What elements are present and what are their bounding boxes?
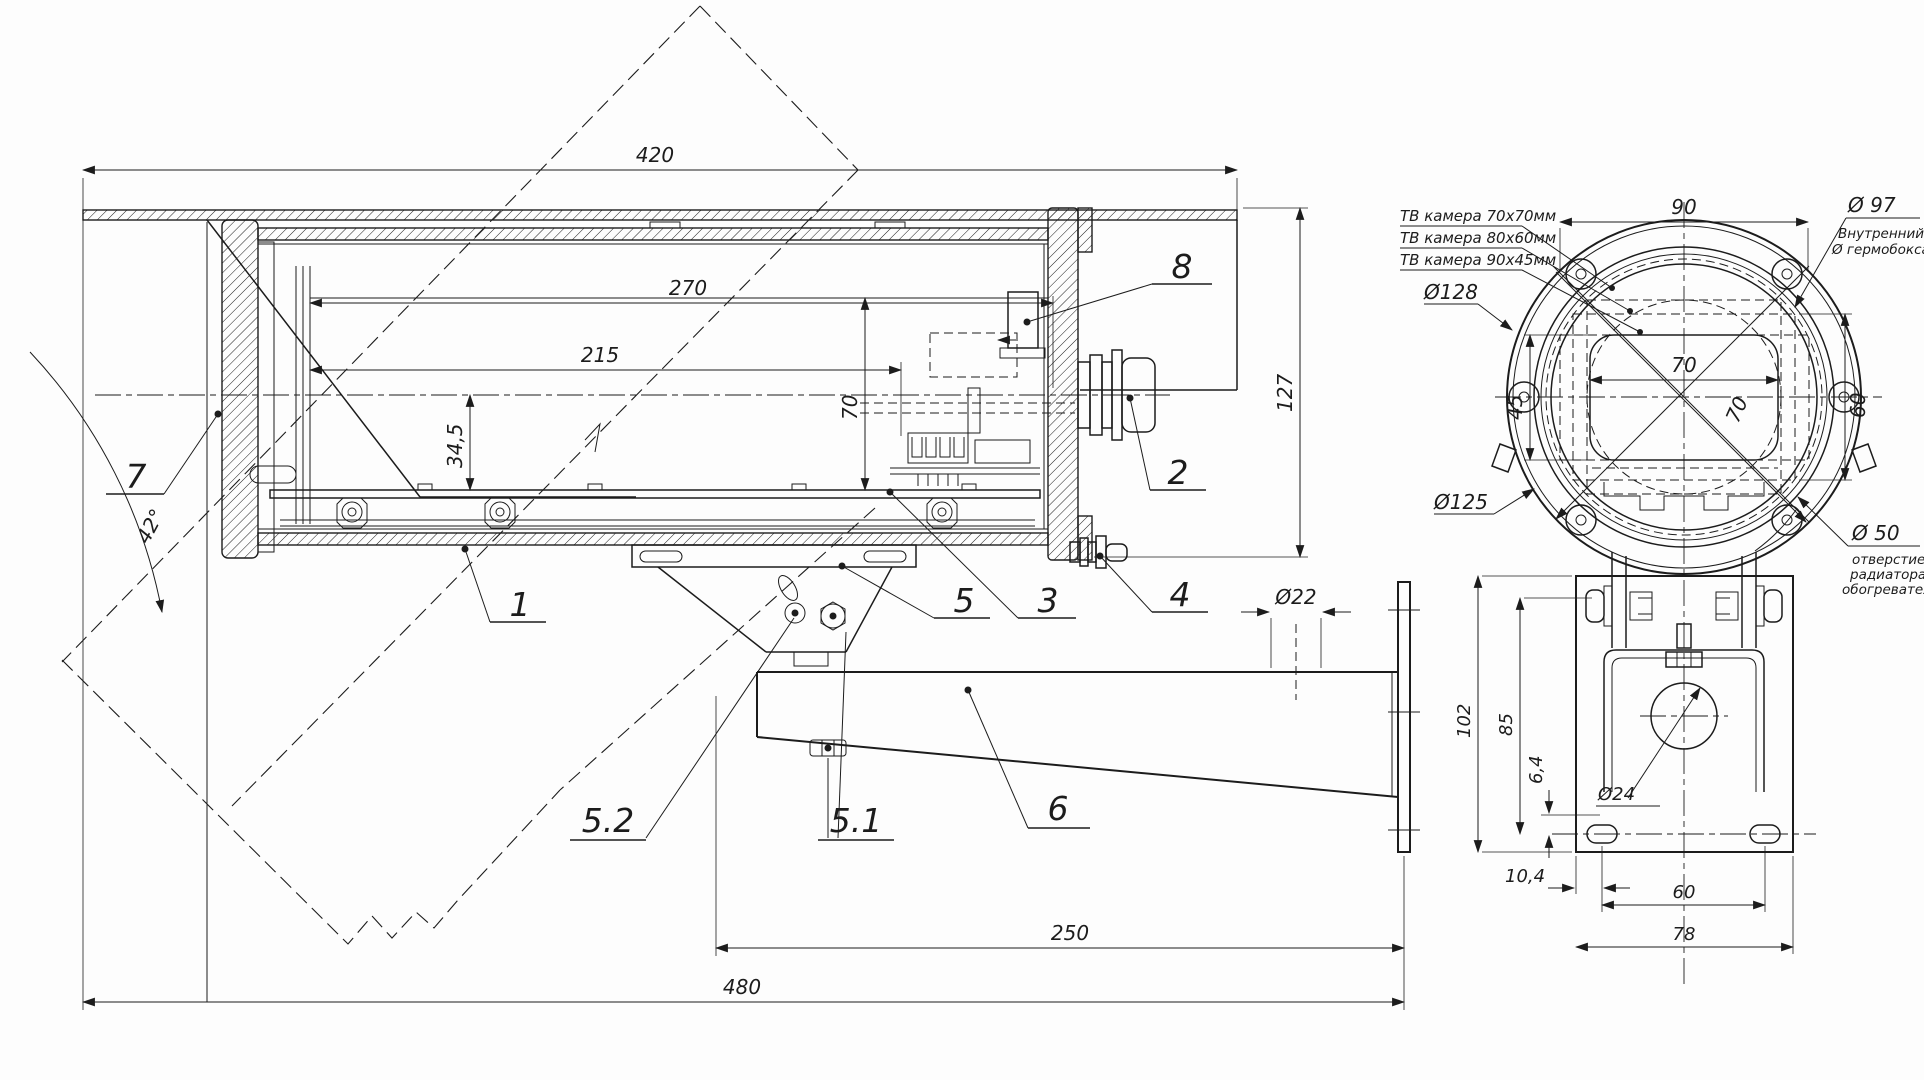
dim-70-side: 70 bbox=[838, 395, 862, 420]
drawing-page: 42° bbox=[0, 0, 1924, 1080]
front-view: 90 45 60 70 70 ТВ камера 70х70мм ТВ каме… bbox=[1400, 193, 1924, 985]
dim-6-4: 6,4 bbox=[1526, 755, 1547, 784]
callout-7: 7 bbox=[126, 457, 147, 496]
note-d97-2: Ø гермобокса bbox=[1831, 242, 1924, 258]
swing-angle: 42° bbox=[30, 222, 207, 1002]
note-d50-3: обогревателя bbox=[1842, 582, 1924, 598]
dim-420: 420 bbox=[636, 143, 674, 167]
dim-10-4: 10,4 bbox=[1505, 866, 1545, 887]
dim-480: 480 bbox=[723, 975, 761, 999]
callout-4: 4 bbox=[1170, 575, 1191, 614]
dim-270: 270 bbox=[669, 276, 707, 300]
rim-tab-right bbox=[1852, 444, 1876, 472]
dim-85: 85 bbox=[1496, 713, 1517, 736]
label-d50: Ø 50 bbox=[1851, 521, 1900, 545]
dim-127: 127 bbox=[1273, 374, 1297, 412]
note-d97-1: Внутренний bbox=[1838, 226, 1924, 242]
camera-sled bbox=[270, 484, 1040, 528]
callout-3: 3 bbox=[1038, 581, 1059, 620]
callout-2: 2 bbox=[1168, 453, 1189, 492]
label-cam-90x45: ТВ камера 90х45мм bbox=[1400, 251, 1556, 269]
dim-90: 90 bbox=[1671, 195, 1696, 219]
mount-bracket bbox=[632, 545, 916, 756]
dim-45: 45 bbox=[1503, 395, 1527, 420]
roller bbox=[337, 498, 367, 528]
dim-250: 250 bbox=[1051, 921, 1089, 945]
housing-body bbox=[258, 222, 1048, 545]
dim-60-front: 60 bbox=[1846, 393, 1870, 418]
callout-5-2: 5.2 bbox=[582, 801, 634, 840]
arm-flange bbox=[1398, 582, 1410, 852]
front-dimensions: 90 45 60 70 70 bbox=[1503, 195, 1870, 480]
label-cam-80x60: ТВ камера 80х60мм bbox=[1400, 229, 1556, 247]
hinge-bolt-left bbox=[1586, 586, 1652, 626]
roller bbox=[927, 498, 957, 528]
label-d125: Ø125 bbox=[1433, 490, 1488, 514]
technical-drawing: 42° bbox=[0, 0, 1924, 1080]
dim-70-horizontal: 70 bbox=[1671, 353, 1696, 377]
heater-aperture bbox=[1592, 468, 1778, 510]
label-d128: Ø128 bbox=[1423, 280, 1478, 304]
note-d50-1: отверстие bbox=[1852, 552, 1924, 568]
dim-78: 78 bbox=[1673, 924, 1696, 945]
hinge-bolt-right bbox=[1716, 586, 1782, 626]
dim-60-bracket: 60 bbox=[1673, 882, 1696, 903]
dim-215: 215 bbox=[581, 343, 619, 367]
terminal-block bbox=[860, 333, 1075, 486]
callout-1: 1 bbox=[510, 585, 531, 624]
side-dimensions: 420 270 215 34,5 70 127 Ø22 250 480 bbox=[83, 143, 1404, 1010]
callout-6: 6 bbox=[1048, 789, 1069, 828]
callout-8: 8 bbox=[1172, 247, 1193, 286]
internal-bracket bbox=[998, 292, 1045, 358]
callout-5: 5 bbox=[954, 581, 975, 620]
callout-5-1: 5.1 bbox=[830, 801, 882, 840]
label-d24: Ø24 bbox=[1597, 784, 1635, 805]
label-d97: Ø 97 bbox=[1847, 193, 1896, 217]
label-cam-70x70: ТВ камера 70х70мм bbox=[1400, 207, 1556, 225]
dim-102: 102 bbox=[1454, 704, 1475, 738]
front-bezel bbox=[222, 220, 310, 558]
rear-cover bbox=[1044, 208, 1092, 560]
dim-42deg: 42° bbox=[131, 505, 169, 548]
note-d50-2: радиатора bbox=[1849, 567, 1924, 583]
dim-34-5: 34,5 bbox=[443, 423, 467, 468]
dim-70-diagonal: 70 bbox=[1721, 393, 1753, 426]
rim-tab-left bbox=[1492, 444, 1516, 472]
dim-d22: Ø22 bbox=[1274, 585, 1316, 609]
bracket-front-view: 102 85 6,4 10,4 60 78 Ø24 bbox=[1454, 552, 1816, 954]
bracket-plate bbox=[1576, 576, 1793, 852]
phantom-open-position-outline bbox=[62, 6, 875, 944]
